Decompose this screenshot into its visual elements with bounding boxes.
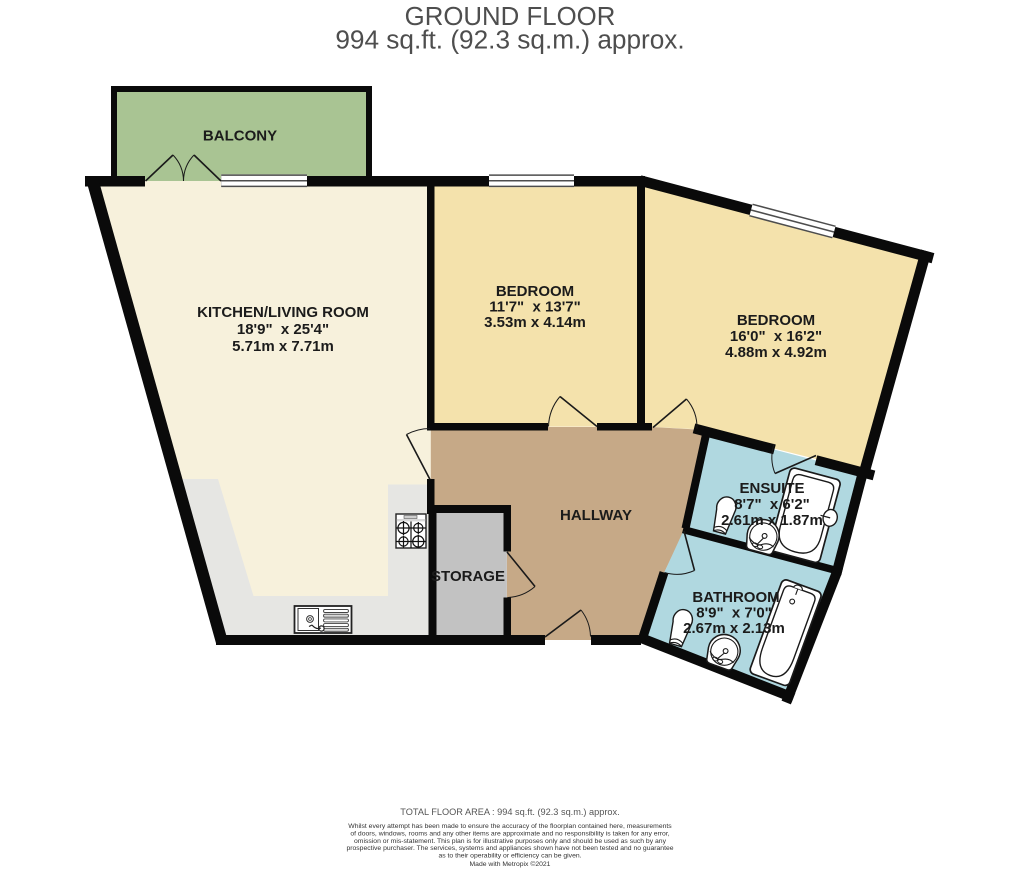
svg-text:HALLWAY: HALLWAY (560, 507, 632, 524)
svg-text:TOTAL FLOOR AREA : 994 sq.ft.: TOTAL FLOOR AREA : 994 sq.ft. (92.3 sq.m… (400, 807, 619, 817)
svg-text:8'7" x 6'2": 8'7" x 6'2" (734, 496, 810, 513)
svg-text:5.71m x 7.71m: 5.71m x 7.71m (232, 338, 334, 355)
svg-text:994 sq.ft. (92.3 sq.m.) approx: 994 sq.ft. (92.3 sq.m.) approx. (335, 25, 684, 55)
svg-text:2.61m x 1.87m: 2.61m x 1.87m (721, 512, 823, 529)
svg-text:BALCONY: BALCONY (203, 128, 277, 145)
svg-text:8'9" x 7'0": 8'9" x 7'0" (696, 605, 772, 622)
svg-text:16'0" x 16'2": 16'0" x 16'2" (730, 328, 822, 345)
svg-text:Whilst every attempt has been: Whilst every attempt has been made to en… (348, 823, 672, 830)
svg-text:STORAGE: STORAGE (431, 568, 505, 585)
svg-text:omission or mis-statement. Thi: omission or mis-statement. This plan is … (354, 838, 667, 845)
svg-text:18'9" x 25'4": 18'9" x 25'4" (237, 321, 329, 338)
svg-text:BEDROOM: BEDROOM (496, 283, 574, 300)
svg-text:prospective purchaser. The ser: prospective purchaser. The services, sys… (346, 845, 673, 852)
svg-text:as to their operability or eff: as to their operability or efficiency ca… (438, 853, 581, 860)
svg-text:4.88m x 4.92m: 4.88m x 4.92m (725, 344, 827, 361)
svg-text:11'7" x 13'7": 11'7" x 13'7" (489, 299, 580, 316)
svg-text:ENSUITE: ENSUITE (739, 480, 804, 497)
svg-text:BATHROOM: BATHROOM (692, 589, 779, 606)
svg-text:Made with Metropix ©2021: Made with Metropix ©2021 (470, 860, 551, 868)
svg-text:KITCHEN/LIVING ROOM: KITCHEN/LIVING ROOM (197, 304, 369, 321)
svg-text:2.67m x 2.13m: 2.67m x 2.13m (683, 620, 785, 637)
svg-text:3.53m x 4.14m: 3.53m x 4.14m (484, 314, 586, 331)
svg-text:of doors, windows, rooms and a: of doors, windows, rooms and any other i… (350, 830, 669, 837)
svg-text:BEDROOM: BEDROOM (737, 312, 815, 329)
